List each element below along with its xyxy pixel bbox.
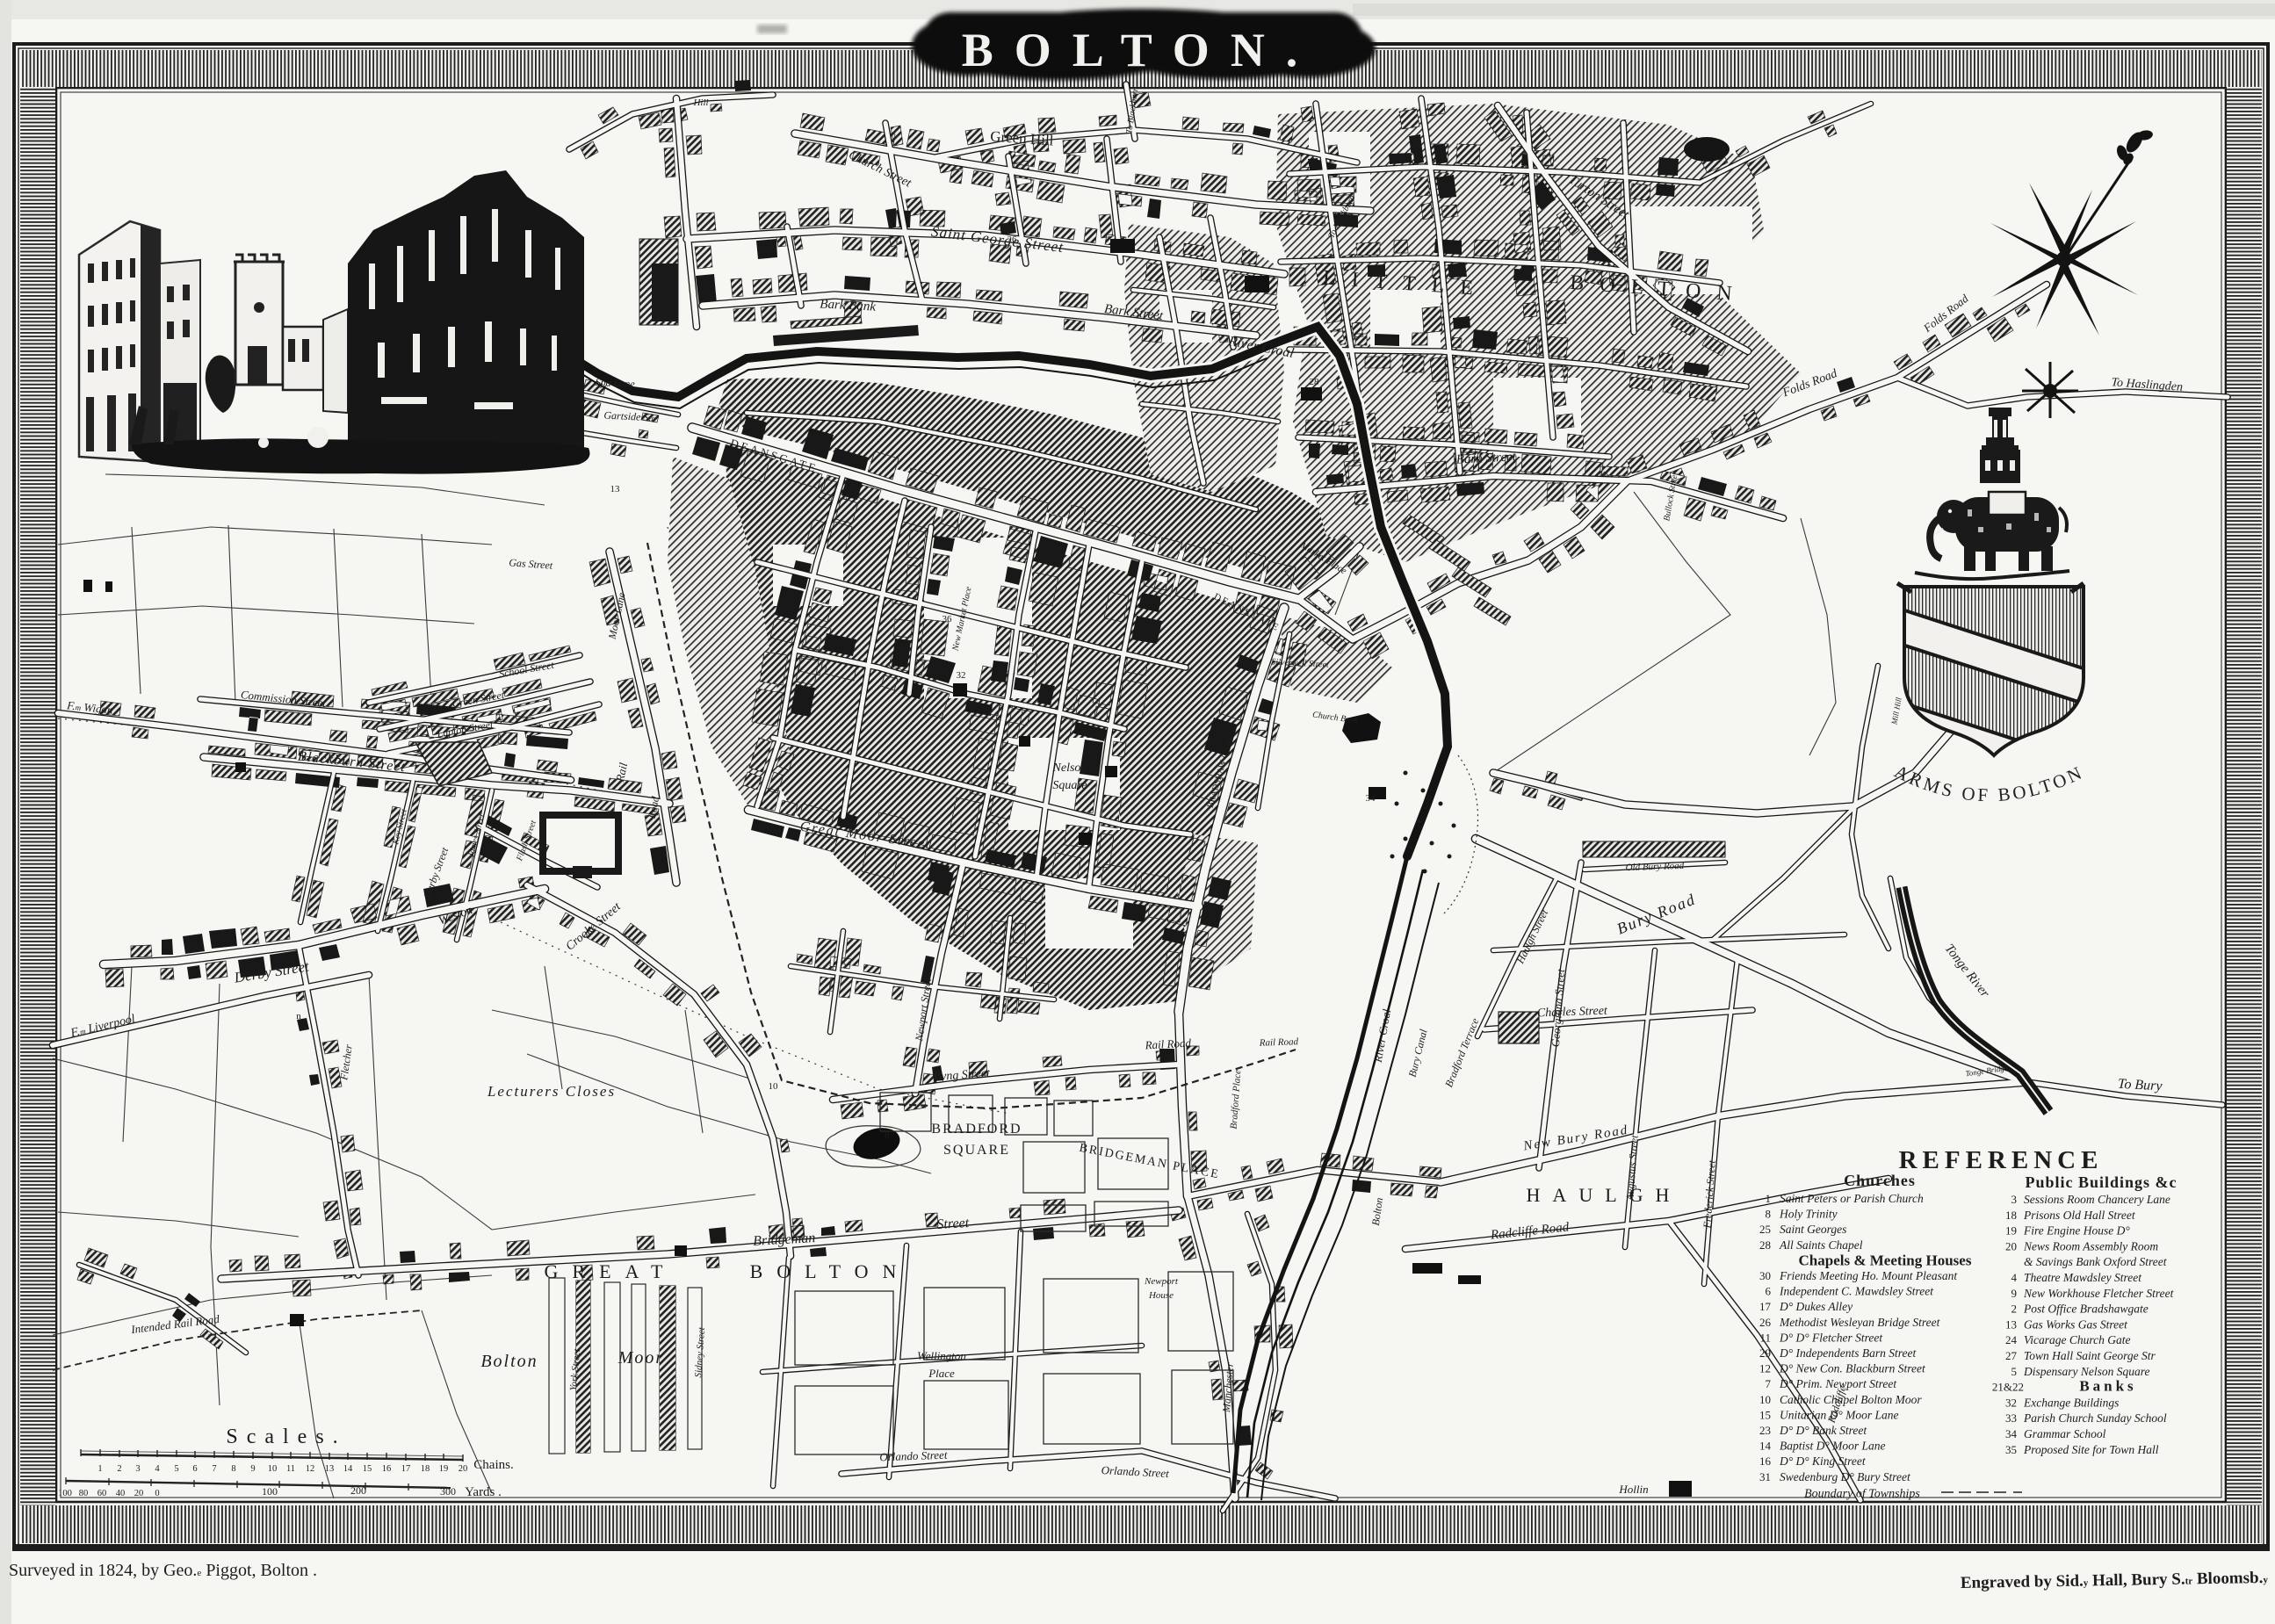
svg-text:New Workhouse Fletcher Street: New Workhouse Fletcher Street — [2023, 1287, 2175, 1300]
svg-text:12: 12 — [1759, 1362, 1771, 1375]
svg-text:13: 13 — [325, 1464, 335, 1474]
svg-text:33: 33 — [2005, 1411, 2017, 1425]
svg-text:18: 18 — [421, 1464, 430, 1474]
svg-text:19: 19 — [439, 1464, 449, 1474]
svg-text:Lecturers Closes: Lecturers Closes — [487, 1083, 616, 1100]
svg-text:20: 20 — [2005, 1239, 2017, 1252]
svg-text:29: 29 — [1759, 1346, 1771, 1360]
svg-text:Baptist D° Moor Lane: Baptist D° Moor Lane — [1780, 1440, 1886, 1453]
svg-text:Public Buildings &c: Public Buildings &c — [2025, 1173, 2177, 1191]
svg-text:9: 9 — [250, 1464, 255, 1474]
svg-text:Chapels & Meeting Houses: Chapels & Meeting Houses — [1799, 1252, 1972, 1268]
svg-text:Square: Square — [1052, 779, 1087, 792]
svg-text:Old Bury Road: Old Bury Road — [1625, 861, 1684, 873]
svg-text:7: 7 — [212, 1464, 216, 1474]
svg-text:28: 28 — [1310, 377, 1320, 387]
svg-text:Proposed Site for Town Hall: Proposed Site for Town Hall — [2023, 1443, 2159, 1456]
svg-text:28: 28 — [1759, 1238, 1771, 1252]
svg-text:Rail Road: Rail Road — [1144, 1036, 1192, 1052]
svg-text:25: 25 — [1759, 1223, 1771, 1236]
svg-text:35: 35 — [2005, 1443, 2017, 1456]
svg-text:REFERENCE: REFERENCE — [1899, 1146, 2104, 1174]
svg-text:& Savings Bank Oxford Street: & Savings Bank Oxford Street — [2024, 1255, 2168, 1268]
svg-text:D° Dukes Alley: D° Dukes Alley — [1779, 1300, 1852, 1313]
svg-text:Vicarage Church Gate: Vicarage Church Gate — [2024, 1333, 2130, 1346]
svg-text:14: 14 — [1759, 1440, 1772, 1453]
svg-text:14: 14 — [343, 1464, 353, 1474]
svg-text:BOLTON.: BOLTON. — [962, 24, 1319, 76]
svg-text:Town Hall Saint George Str: Town Hall Saint George Str — [2024, 1349, 2156, 1362]
svg-text:Hollin: Hollin — [1618, 1483, 1648, 1496]
svg-text:Parish Church Sunday School: Parish Church Sunday School — [2023, 1411, 2167, 1425]
svg-text:32: 32 — [2005, 1396, 2017, 1409]
svg-text:Post Office Bradshawgate: Post Office Bradshawgate — [2023, 1303, 2149, 1316]
svg-text:3: 3 — [2011, 1193, 2018, 1206]
svg-text:D° Independents Barn Stree: D° Independents Barn Street — [1779, 1346, 1917, 1360]
svg-text:4: 4 — [155, 1464, 160, 1474]
svg-text:Place: Place — [928, 1367, 955, 1380]
svg-text:Newport: Newport — [1144, 1276, 1179, 1287]
svg-text:Wellington: Wellington — [917, 1349, 966, 1362]
svg-text:House: House — [1148, 1290, 1174, 1301]
svg-text:11: 11 — [286, 1464, 295, 1474]
svg-text:Bark Bank: Bark Bank — [820, 297, 877, 314]
svg-text:20: 20 — [134, 1489, 144, 1498]
svg-text:Prisons Old Hall Street: Prisons Old Hall Street — [2023, 1209, 2136, 1222]
svg-text:200: 200 — [350, 1484, 366, 1497]
svg-text:36: 36 — [942, 614, 953, 624]
svg-text:26: 26 — [1759, 1316, 1772, 1329]
svg-text:n: n — [296, 1011, 301, 1021]
svg-text:17: 17 — [1759, 1300, 1772, 1313]
svg-text:Friends Meeting Ho. Mount Pl: Friends Meeting Ho. Mount Pleasant — [1779, 1269, 1958, 1282]
svg-text:27: 27 — [2005, 1349, 2018, 1362]
svg-text:20: 20 — [459, 1464, 468, 1474]
svg-text:Fire Engine House D°: Fire Engine House D° — [2023, 1224, 2130, 1238]
svg-text:13: 13 — [610, 484, 621, 494]
svg-text:6: 6 — [192, 1464, 197, 1474]
svg-text:1: 1 — [97, 1464, 102, 1474]
svg-text:Independent C. Mawdsley Stree: Independent C. Mawdsley Street — [1779, 1285, 1934, 1298]
svg-text:Street: Street — [936, 1216, 970, 1232]
svg-text:17: 17 — [401, 1464, 411, 1474]
svg-text:13: 13 — [2005, 1317, 2017, 1331]
svg-text:2: 2 — [117, 1464, 121, 1474]
svg-text:11: 11 — [1759, 1331, 1771, 1344]
svg-text:Saint Peters or Parish Church: Saint Peters or Parish Church — [1780, 1192, 1924, 1205]
svg-text:30: 30 — [1759, 1269, 1771, 1282]
svg-text:10: 10 — [1759, 1393, 1771, 1406]
svg-text:4: 4 — [2011, 1271, 2018, 1284]
svg-text:Hill: Hill — [692, 97, 708, 108]
svg-text:Yards .: Yards . — [465, 1485, 502, 1499]
svg-text:Catholic Chapel Bolton Moor: Catholic Chapel Bolton Moor — [1780, 1393, 1922, 1406]
svg-text:Charles Street: Charles Street — [1537, 1005, 1609, 1021]
svg-text:300: 300 — [440, 1485, 456, 1498]
svg-text:BOLTON: BOLTON — [750, 1260, 911, 1282]
svg-text:SQUARE: SQUARE — [943, 1143, 1010, 1158]
svg-text:23: 23 — [1759, 1424, 1771, 1437]
svg-text:3: 3 — [135, 1464, 140, 1474]
svg-text:Swedenburg D° Bury Street: Swedenburg D° Bury Street — [1780, 1470, 1911, 1483]
svg-text:Nelson: Nelson — [1052, 761, 1087, 775]
svg-text:32: 32 — [957, 670, 966, 681]
svg-text:Bolton: Bolton — [480, 1352, 538, 1371]
svg-text:8: 8 — [1766, 1208, 1772, 1221]
svg-text:Holy Trinity: Holy Trinity — [1779, 1208, 1838, 1221]
svg-text:Theatre Mawdsley Street: Theatre Mawdsley Street — [2024, 1271, 2142, 1284]
svg-text:Boundary of Townships: Boundary of Townships — [1804, 1487, 1920, 1500]
svg-text:News Room Assembly Room: News Room Assembly Room — [2023, 1239, 2158, 1252]
svg-text:5: 5 — [2011, 1365, 2018, 1378]
svg-text:Rail Road: Rail Road — [1259, 1036, 1299, 1049]
svg-text:9: 9 — [2011, 1287, 2018, 1300]
svg-text:Orlando Street: Orlando Street — [879, 1448, 948, 1464]
svg-text:2: 2 — [2011, 1303, 2018, 1316]
svg-text:0: 0 — [155, 1489, 159, 1498]
svg-text:16: 16 — [382, 1464, 392, 1474]
svg-text:GREAT: GREAT — [545, 1260, 677, 1282]
svg-text:26: 26 — [1007, 235, 1018, 245]
svg-text:To Bury: To Bury — [2118, 1077, 2163, 1094]
svg-text:100: 100 — [58, 1489, 72, 1498]
svg-text:S c a l e s .: S c a l e s . — [226, 1426, 339, 1448]
svg-text:12: 12 — [306, 1464, 315, 1474]
svg-text:Unitarian D° Moor Lane: Unitarian D° Moor Lane — [1780, 1408, 1899, 1421]
svg-text:80: 80 — [79, 1489, 89, 1498]
svg-text:HAULGH: HAULGH — [1527, 1184, 1682, 1206]
svg-text:Chains.: Chains. — [473, 1458, 513, 1472]
svg-text:21&22: 21&22 — [1992, 1381, 2024, 1394]
svg-text:15: 15 — [363, 1464, 372, 1474]
svg-text:100: 100 — [262, 1485, 278, 1498]
svg-text:5: 5 — [174, 1464, 178, 1474]
svg-text:15: 15 — [1759, 1408, 1771, 1421]
svg-text:16: 16 — [1759, 1454, 1772, 1468]
svg-text:D° Prim. Newport Street: D° Prim. Newport Street — [1779, 1377, 1897, 1390]
svg-text:D° D° Bank Street: D° D° Bank Street — [1779, 1424, 1867, 1437]
svg-text:Spa Lane: Spa Lane — [595, 376, 635, 390]
svg-text:6: 6 — [1766, 1285, 1772, 1298]
svg-text:34: 34 — [2005, 1427, 2018, 1440]
svg-text:Banks: Banks — [2079, 1378, 2136, 1395]
svg-text:40: 40 — [116, 1489, 126, 1498]
svg-text:Exchange Buildings: Exchange Buildings — [2023, 1396, 2119, 1409]
svg-text:Churches: Churches — [1844, 1172, 1916, 1189]
svg-text:D° D° King Street: D° D° King Street — [1779, 1454, 1867, 1468]
svg-text:8: 8 — [231, 1464, 235, 1474]
svg-text:Methodist Wesleyan Bridge Stre: Methodist Wesleyan Bridge Street — [1779, 1316, 1941, 1329]
svg-text:BRADFORD: BRADFORD — [931, 1122, 1022, 1137]
svg-text:31: 31 — [1759, 1470, 1771, 1483]
svg-text:Surveyed in 1824, by Geo.e Pig: Surveyed in 1824, by Geo.e Piggot, Bolto… — [9, 1561, 317, 1580]
svg-text:Gas Works Gas Street: Gas Works Gas Street — [2024, 1317, 2128, 1331]
svg-text:D° New Con. Blackburn Street: D° New Con. Blackburn Street — [1779, 1362, 1926, 1375]
svg-text:7: 7 — [1766, 1377, 1772, 1390]
svg-text:1: 1 — [1766, 1192, 1772, 1205]
svg-text:60: 60 — [97, 1489, 107, 1498]
svg-text:Dispensary Nelson Square: Dispensary Nelson Square — [2023, 1365, 2150, 1378]
svg-text:18: 18 — [2005, 1209, 2017, 1222]
svg-text:Saint Georges: Saint Georges — [1780, 1223, 1846, 1236]
svg-text:D° D° Fletcher Street: D° D° Fletcher Street — [1779, 1331, 1883, 1344]
svg-text:24: 24 — [2005, 1333, 2018, 1346]
svg-text:34: 34 — [1366, 793, 1376, 804]
svg-text:Moor: Moor — [617, 1348, 664, 1368]
svg-text:All Saints Chapel: All Saints Chapel — [1779, 1238, 1863, 1252]
svg-text:Sessions Room Chancery Lane: Sessions Room Chancery Lane — [2024, 1193, 2170, 1206]
svg-text:Grammar School: Grammar School — [2024, 1427, 2106, 1440]
svg-text:10: 10 — [769, 1081, 779, 1092]
svg-text:8: 8 — [885, 1130, 890, 1141]
svg-text:19: 19 — [2005, 1224, 2017, 1238]
svg-text:10: 10 — [268, 1464, 278, 1474]
